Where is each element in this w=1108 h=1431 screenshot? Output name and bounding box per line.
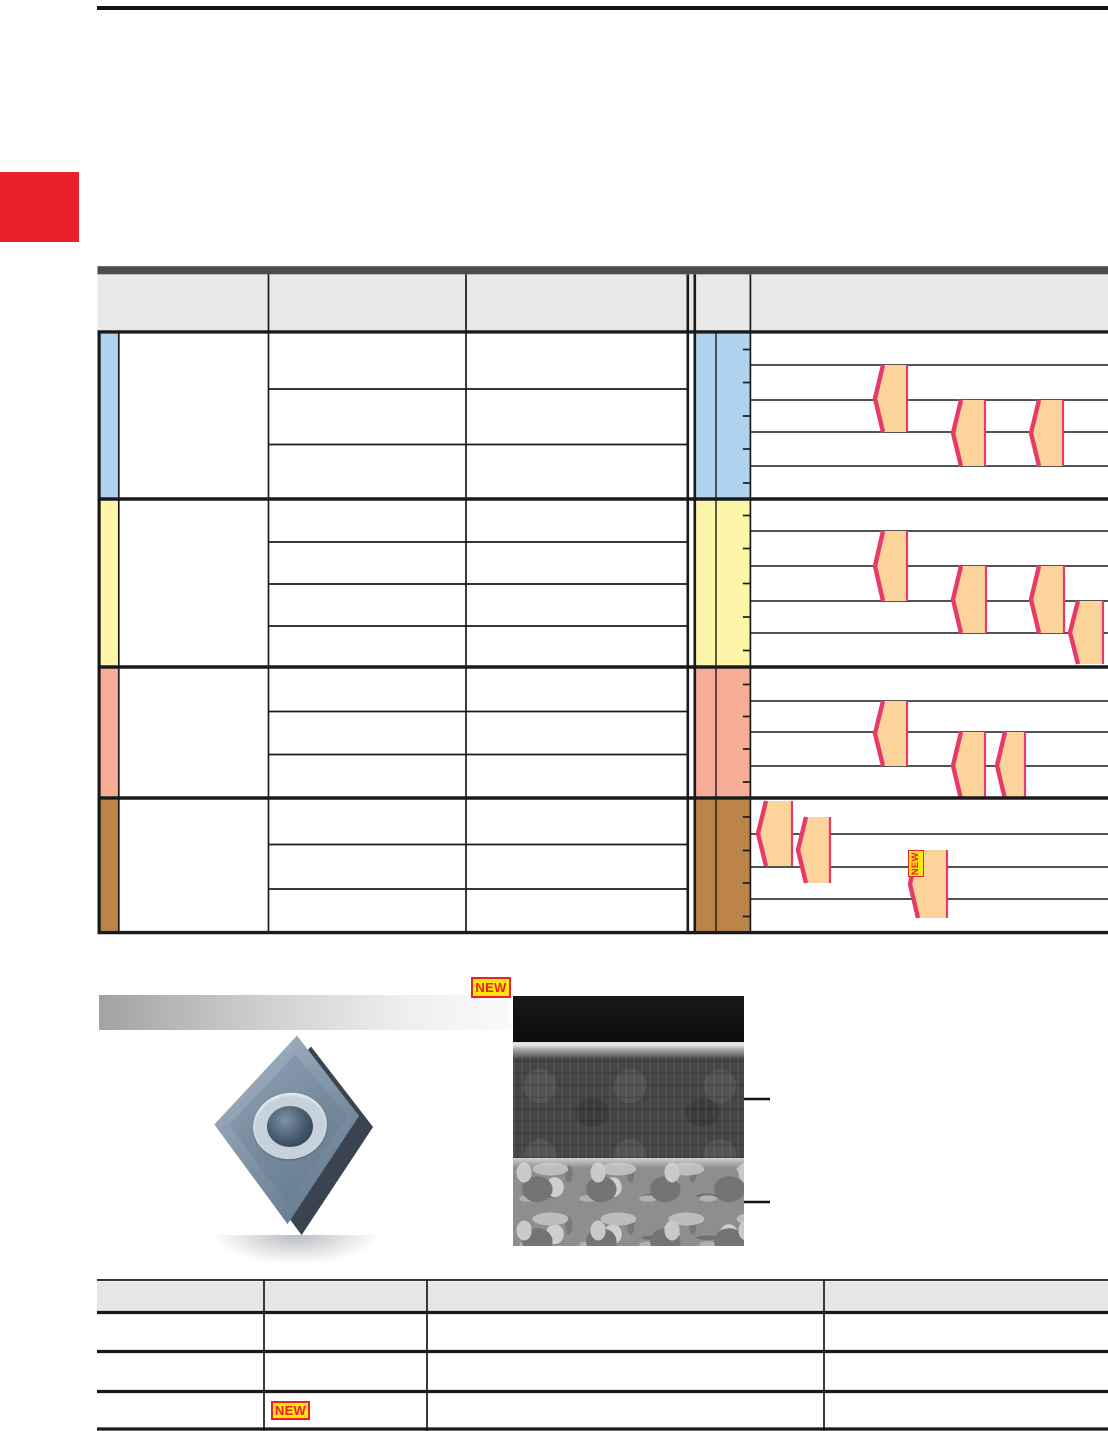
sem-top-band <box>513 996 744 1042</box>
section-salmon-strip <box>98 669 119 797</box>
top-rule <box>97 6 1108 10</box>
section-blue-range-left-edge <box>953 400 961 466</box>
section-brown-range-left-edge <box>758 801 766 866</box>
insert-product-photo <box>203 1027 391 1239</box>
section-salmon-range <box>875 701 907 766</box>
section-salmon-range <box>997 732 1025 799</box>
new-badge-label: NEW <box>275 1404 306 1417</box>
section-yellow-range-left-edge <box>1070 601 1078 664</box>
section-brown-range <box>758 801 792 866</box>
new-badge-label: NEW <box>911 852 921 875</box>
new-badge-chart-range: NEW <box>908 850 924 877</box>
insert-reflection <box>211 1235 381 1265</box>
sem-cross-section-image <box>513 996 744 1246</box>
section-salmon-range-left-edge <box>953 732 961 799</box>
section-yellow-iso-cell <box>696 501 751 666</box>
section-blue-strip <box>98 334 119 498</box>
section-yellow-range <box>875 531 907 601</box>
section-salmon-range-left-edge <box>875 701 883 766</box>
section-salmon-iso-cell <box>696 669 751 797</box>
section-yellow-range <box>1070 601 1103 664</box>
section-brown-strip <box>98 800 119 931</box>
new-badge-label: NEW <box>475 981 506 994</box>
section-salmon-range-left-edge <box>997 732 1005 799</box>
sem-coating-layer <box>513 1058 744 1158</box>
section-blue-range <box>875 365 907 432</box>
page-tab-accent <box>0 172 79 242</box>
section-brown-iso-cell <box>696 800 751 931</box>
section-yellow-range <box>953 566 986 633</box>
section-yellow-range <box>1031 566 1064 633</box>
sem-substrate-layer <box>513 1158 744 1246</box>
section-blue-range-left-edge <box>1031 400 1039 466</box>
bottom-table-header-row <box>97 1282 1108 1312</box>
section-blue-range <box>1031 400 1063 466</box>
catalog-page: NEWNEWNEW <box>0 0 1108 1431</box>
new-badge-figure-top: NEW <box>471 977 511 998</box>
figure-title-banner <box>99 995 511 1030</box>
insert-center-hole <box>267 1106 313 1147</box>
section-salmon-range <box>953 732 985 799</box>
new-badge-bottom-table: NEW <box>271 1401 310 1420</box>
section-yellow-range-left-edge <box>875 531 883 601</box>
section-yellow-range-left-edge <box>1031 566 1039 633</box>
section-brown-range-left-edge <box>798 817 806 883</box>
section-blue-range-left-edge <box>875 365 883 432</box>
section-yellow-strip <box>98 501 119 666</box>
section-blue-range <box>953 400 985 466</box>
section-yellow-range-left-edge <box>953 566 961 633</box>
table-header-row <box>98 274 1108 330</box>
section-brown-range <box>798 817 830 883</box>
table-header-bar <box>98 266 1108 274</box>
section-blue-iso-cell <box>696 334 751 498</box>
sem-surface-line <box>513 1042 744 1058</box>
